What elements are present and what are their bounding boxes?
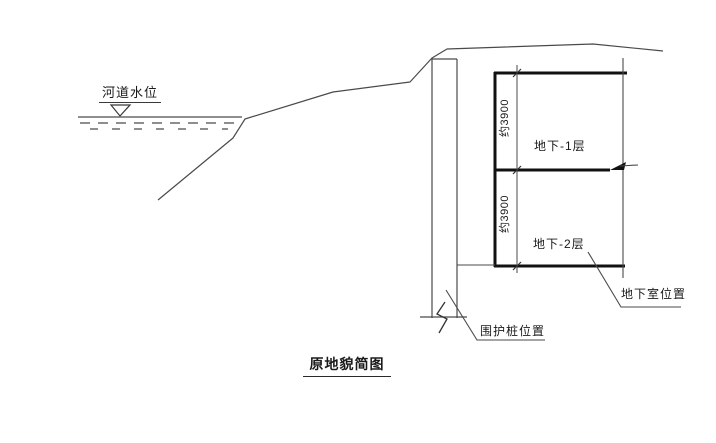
basement-level-2-label: 地下-2层 (533, 238, 585, 251)
engineering-sketch-canvas: 河道水位 约3900 约3900 地下-1层 地下-2层 地下室位置 围护桩位置… (0, 0, 716, 443)
river-water-level-label: 河道水位 (99, 86, 161, 103)
basement-level-1-label: 地下-1层 (534, 140, 586, 153)
drawing-title: 原地貌简图 (303, 357, 391, 377)
water-level-icon (111, 105, 130, 116)
ground-profile-line (158, 44, 663, 200)
basement-level-1-dimension: 约3900 (499, 96, 513, 140)
basement-level-2-dimension: 约3900 (499, 192, 513, 236)
retaining-pile-position-label: 围护桩位置 (480, 325, 545, 338)
basement-position-label: 地下室位置 (621, 288, 686, 301)
